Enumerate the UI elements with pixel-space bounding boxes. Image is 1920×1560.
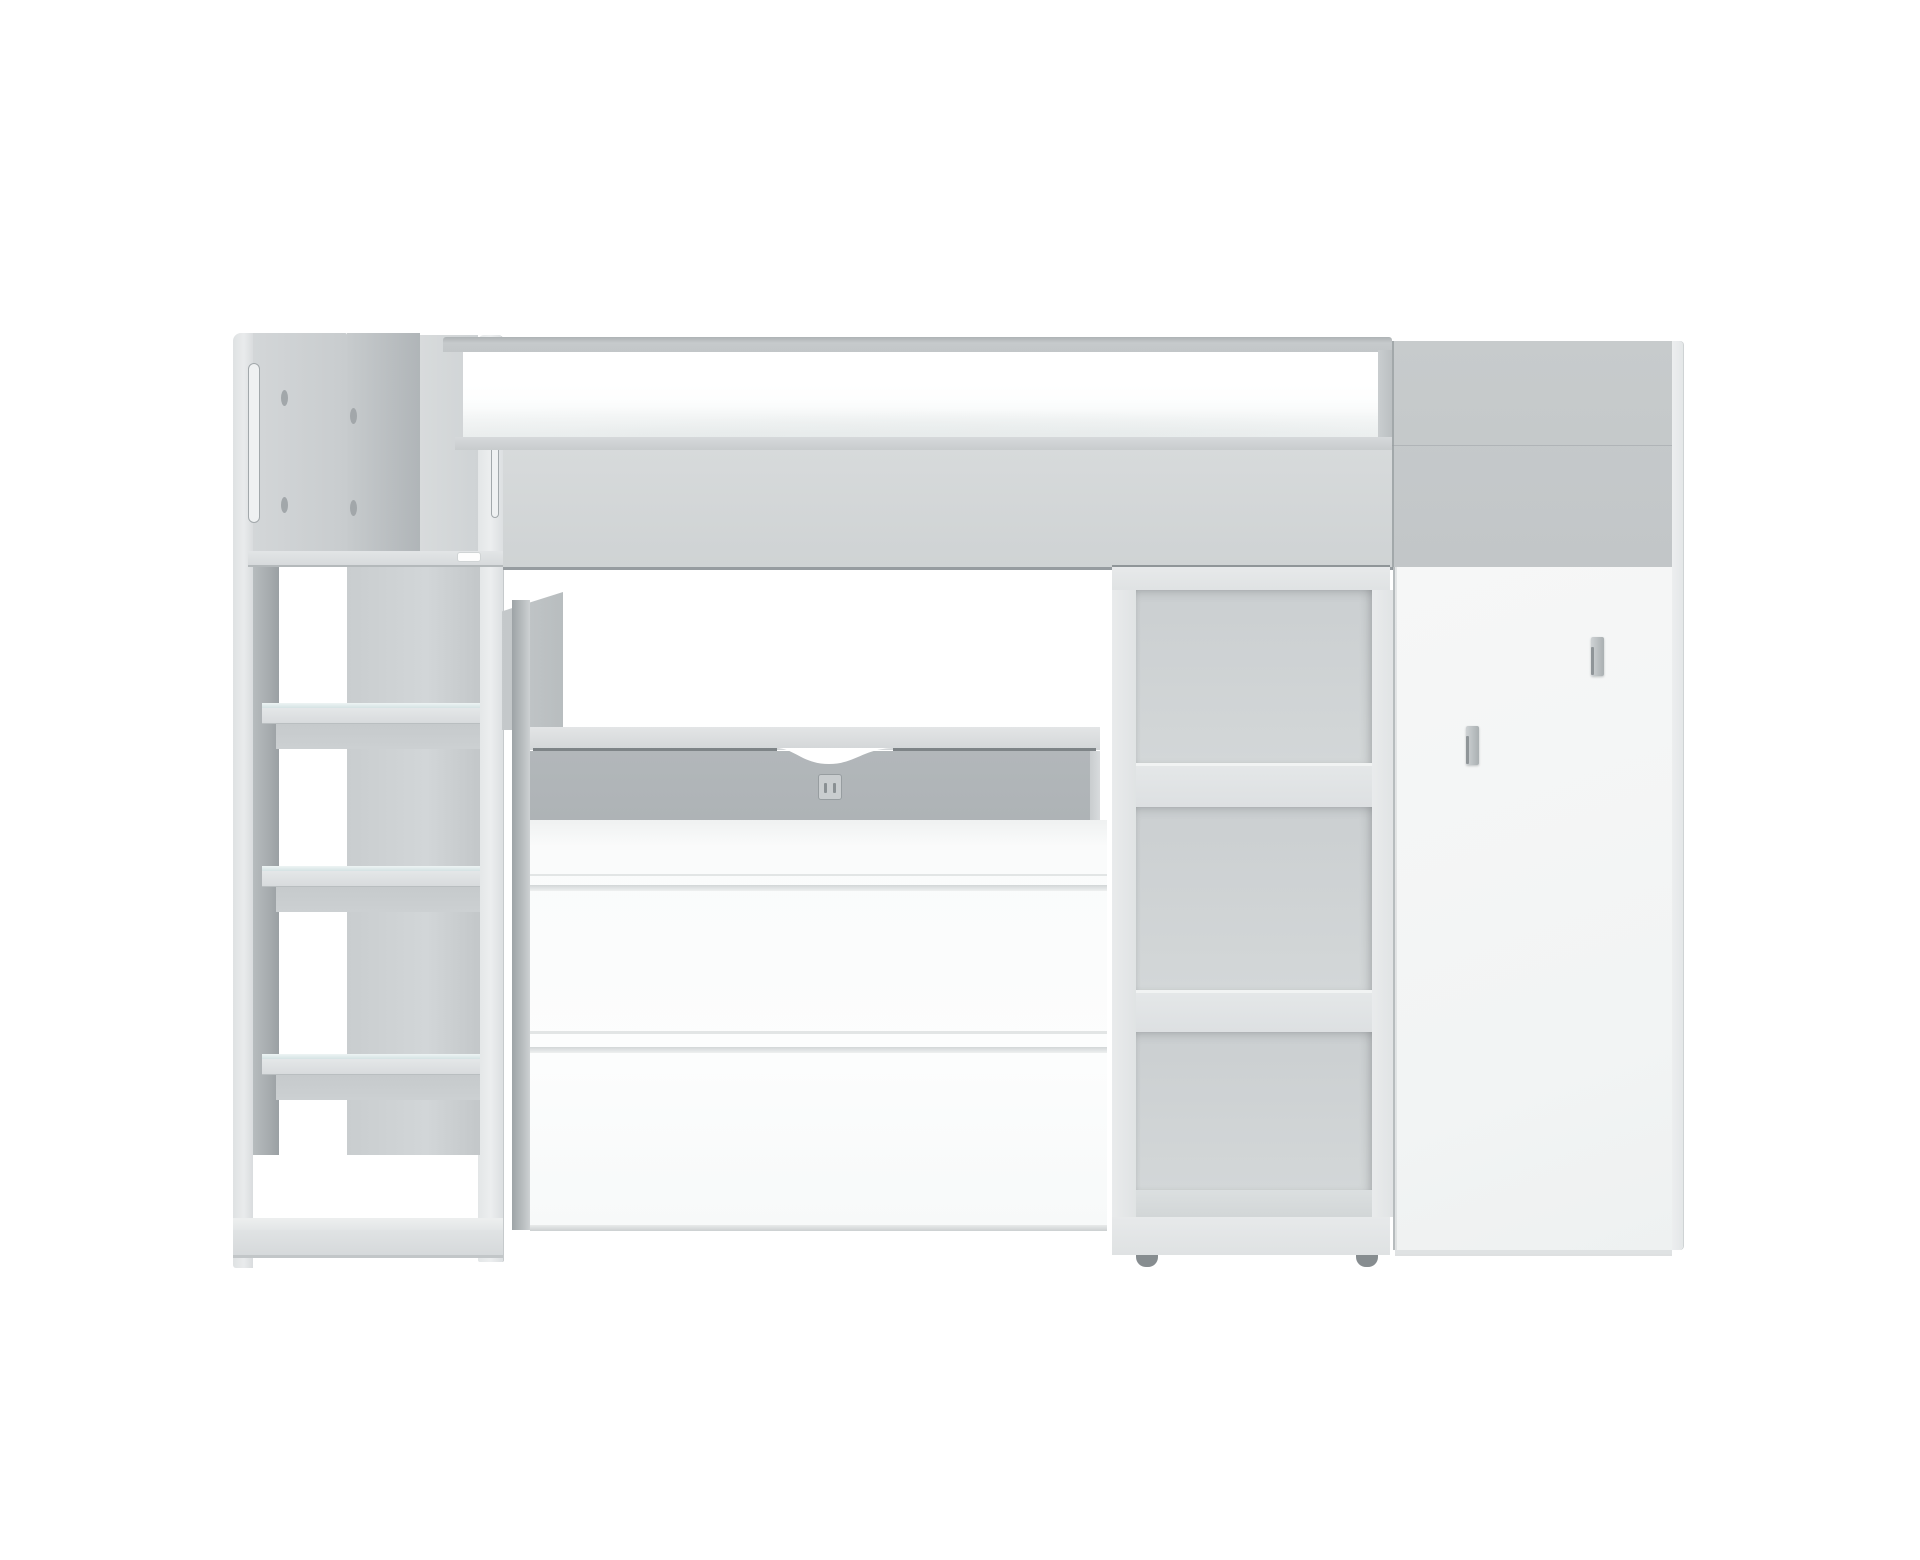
product-photo-canvas: { "scene": { "type": "product-photo", "s… — [0, 0, 1920, 1560]
bookcase-bottom-rail — [1112, 1217, 1390, 1255]
bookcase-compartment-3 — [1136, 1032, 1372, 1190]
drill-hole — [350, 408, 357, 424]
small-fitting-highlight — [458, 553, 480, 561]
panel-seam — [1392, 445, 1683, 446]
headboard-panel-side — [347, 333, 420, 560]
outlet-plate — [818, 774, 842, 800]
desk-rail-end-cap — [1090, 751, 1100, 820]
handle-notch — [1591, 647, 1594, 675]
drawer-gap — [530, 885, 1107, 891]
bookcase-right-upright — [1372, 590, 1395, 1217]
caster-foot — [1356, 1255, 1378, 1267]
handle-notch — [1466, 736, 1469, 764]
outlet-slot — [824, 783, 827, 793]
wardrobe-handle-lower — [1466, 726, 1479, 765]
bookcase-compartment-2 — [1136, 807, 1372, 990]
bookcase-top-rail — [1112, 565, 1390, 592]
bookcase-left-upright — [1112, 590, 1136, 1255]
wardrobe-right-side — [1672, 341, 1683, 1250]
drawer-gap — [530, 1047, 1107, 1053]
headboard-panel — [253, 333, 347, 560]
mattress — [463, 352, 1378, 437]
chest-left-edge — [512, 600, 530, 1230]
bed-rail-sill — [455, 437, 1392, 450]
ladder-bottom-shelf — [233, 1230, 503, 1258]
ladder-back-panel — [347, 565, 480, 1155]
caster-foot — [1136, 1255, 1158, 1267]
bed-guard-rail-top — [443, 337, 1392, 352]
drill-hole — [350, 500, 357, 516]
wardrobe-handle-upper — [1591, 637, 1604, 676]
chest-bottom-edge — [530, 1225, 1107, 1231]
cable-notch-cutout — [777, 748, 893, 770]
headboard-handle-groove — [248, 363, 260, 523]
bookcase-shelf-1 — [1136, 763, 1372, 809]
chest-of-drawers — [530, 820, 1107, 1225]
bed-guard-rail-end — [1378, 350, 1392, 450]
outlet-slot — [833, 783, 836, 793]
ladder-bottom-shelf-top — [233, 1218, 503, 1230]
drill-hole — [281, 497, 288, 513]
wardrobe-front — [1395, 567, 1672, 1254]
bookcase-compartment-1 — [1136, 590, 1372, 763]
drill-hole — [281, 390, 288, 406]
desk-top — [530, 727, 1100, 750]
drawer-groove — [530, 1031, 1107, 1034]
wardrobe-upper-gray-panel — [1392, 341, 1683, 570]
bed-front-panel — [503, 450, 1392, 570]
drawer-groove — [530, 874, 1107, 876]
bookcase-floor — [1136, 1190, 1372, 1217]
bookcase-shelf-2 — [1136, 990, 1372, 1034]
